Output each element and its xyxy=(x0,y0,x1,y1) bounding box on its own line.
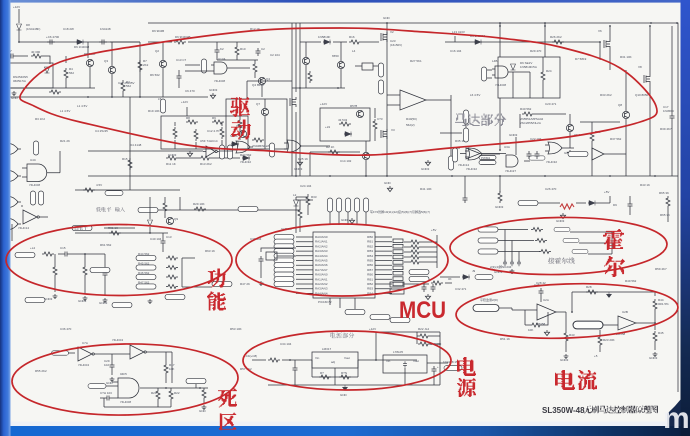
svg-text:GND3: GND3 xyxy=(509,133,518,137)
svg-text:Q9: Q9 xyxy=(174,217,178,221)
svg-text:74HC08: 74HC08 xyxy=(120,400,131,404)
svg-text:10K: 10K xyxy=(528,328,533,332)
svg-text:R3 1K2: R3 1K2 xyxy=(35,117,45,121)
svg-text:R20: R20 xyxy=(151,391,157,395)
svg-text:GND3: GND3 xyxy=(99,301,108,305)
svg-text:74HC32: 74HC32 xyxy=(240,160,251,164)
svg-text:R49 562: R49 562 xyxy=(625,279,637,283)
svg-text:LM317: LM317 xyxy=(322,347,332,351)
svg-text:74HC32: 74HC32 xyxy=(466,167,477,171)
svg-text:GND3: GND3 xyxy=(294,167,303,171)
svg-text:C?3: C?3 xyxy=(377,117,383,121)
svg-text:R19 10K: R19 10K xyxy=(148,109,160,113)
svg-text:RB1: RB1 xyxy=(367,240,373,244)
svg-text:C18 2W: C18 2W xyxy=(63,27,74,31)
svg-text:+5: +5 xyxy=(594,354,598,358)
svg-text:R27 5K1: R27 5K1 xyxy=(410,59,422,63)
svg-text:Q4: Q4 xyxy=(266,77,270,81)
svg-text:RA1/AN1: RA1/AN1 xyxy=(315,240,328,244)
svg-text:C?H 103: C?H 103 xyxy=(100,391,112,395)
svg-text:2K2: 2K2 xyxy=(143,63,149,67)
svg-text:R9: R9 xyxy=(212,116,216,120)
svg-text:L2: L2 xyxy=(293,193,297,197)
svg-text:RA7/AN7: RA7/AN7 xyxy=(315,268,328,272)
svg-text:R16: R16 xyxy=(349,35,355,39)
svg-text:L5: L5 xyxy=(158,97,162,101)
svg-text:R23 562: R23 562 xyxy=(240,153,252,157)
svg-text:RB4: RB4 xyxy=(367,254,373,258)
svg-text:C13: C13 xyxy=(166,235,172,239)
svg-text:V3: V3 xyxy=(391,128,395,132)
svg-text:R?: R? xyxy=(320,371,324,375)
svg-text:RA0/AN0: RA0/AN0 xyxy=(315,273,328,277)
svg-text:C4? 25x35V: C4? 25x35V xyxy=(118,81,135,85)
svg-text:C16 104: C16 104 xyxy=(450,49,462,53)
svg-text:Vout: Vout xyxy=(344,356,350,360)
svg-text:74HC32: 74HC32 xyxy=(546,160,557,164)
svg-text:L4: L4 xyxy=(352,49,356,53)
svg-text:C2 104: C2 104 xyxy=(270,53,280,57)
svg-text:Vout: Vout xyxy=(413,359,419,363)
svg-text:平稳监测2(R): 平稳监测2(R) xyxy=(480,297,498,302)
svg-text:R43: R43 xyxy=(569,333,575,337)
svg-text:102: 102 xyxy=(104,363,109,367)
svg-text:GND: GND xyxy=(383,16,391,20)
svg-text:R22 JL2: R22 JL2 xyxy=(418,327,430,331)
svg-text:C15: C15 xyxy=(60,246,66,250)
svg-text:RB3: RB3 xyxy=(367,249,373,253)
svg-text:MCU: MCU xyxy=(399,297,446,324)
svg-text:D6 9D4B: D6 9D4B xyxy=(152,29,164,33)
svg-text:RA2/AN2: RA2/AN2 xyxy=(315,244,328,248)
svg-text:RA5/AN5: RA5/AN5 xyxy=(315,259,328,263)
svg-text:SL350W-48: SL350W-48 xyxy=(542,406,585,415)
svg-text:+L9: +L9 xyxy=(325,125,330,129)
svg-text:U13A: U13A xyxy=(218,57,226,61)
svg-text:RA3/AN3: RA3/AN3 xyxy=(315,287,328,291)
svg-text:R13 2K2: R13 2K2 xyxy=(200,162,212,166)
svg-text:R39 4K7: R39 4K7 xyxy=(660,127,672,131)
svg-text:C34 104: C34 104 xyxy=(280,342,292,346)
svg-text:R10: R10 xyxy=(240,47,246,51)
svg-text:RB0: RB0 xyxy=(367,273,373,277)
svg-text:RA2/AN2: RA2/AN2 xyxy=(315,282,328,286)
svg-text:GND3: GND3 xyxy=(560,358,569,362)
svg-text:1N4148: 1N4148 xyxy=(100,27,111,31)
svg-text:GND: GND xyxy=(340,393,348,397)
svg-text:RB0: RB0 xyxy=(367,235,373,239)
svg-text:R41 10K: R41 10K xyxy=(420,187,432,191)
svg-text:562(2): 562(2) xyxy=(406,123,415,127)
svg-text:2N04B/NL2A: 2N04B/NL2A xyxy=(252,144,270,148)
svg-text:C32 471: C32 471 xyxy=(455,287,467,291)
svg-text:R37 562: R37 562 xyxy=(610,137,622,141)
svg-text:RA0/AN0: RA0/AN0 xyxy=(315,235,328,239)
svg-text:06050.5A: 06050.5A xyxy=(13,79,26,83)
svg-text:R44 562: R44 562 xyxy=(138,252,150,256)
svg-text:+: + xyxy=(437,365,439,369)
svg-text:R35 1K: R35 1K xyxy=(455,139,465,143)
svg-text:R65 3K: R65 3K xyxy=(660,213,670,217)
svg-text:C12 4.7K: C12 4.7K xyxy=(207,129,220,133)
svg-text:GND: GND xyxy=(106,381,114,385)
svg-text:D7 5819: D7 5819 xyxy=(575,57,587,61)
svg-text:RA1/AN1: RA1/AN1 xyxy=(315,277,328,281)
svg-text:C20 471: C20 471 xyxy=(545,102,557,106)
svg-text:6550: 6550 xyxy=(332,54,339,58)
svg-text:GND3: GND3 xyxy=(556,219,565,223)
svg-text:+C9(+C8): +C9(+C8) xyxy=(244,354,257,358)
svg-text:Q2: Q2 xyxy=(155,49,159,53)
svg-text:R31 1K: R31 1K xyxy=(108,226,118,230)
svg-text:C14 102: C14 102 xyxy=(340,159,352,163)
svg-text:R51 1K: R51 1K xyxy=(500,337,510,341)
svg-text:U2B: U2B xyxy=(622,310,628,314)
svg-text:C36 470: C36 470 xyxy=(60,327,72,331)
svg-text:J9: J9 xyxy=(472,269,476,273)
svg-text:R21 2K: R21 2K xyxy=(60,139,70,143)
svg-text:U4C: U4C xyxy=(30,158,37,162)
svg-text:R26 2K2: R26 2K2 xyxy=(550,35,562,39)
svg-text:R22: R22 xyxy=(174,391,180,395)
svg-text:R45: R45 xyxy=(658,331,664,335)
svg-text:RA4/AN4: RA4/AN4 xyxy=(315,254,328,258)
svg-text:R28: R28 xyxy=(586,285,592,289)
svg-text:V8: V8 xyxy=(638,65,642,69)
svg-text:+12V: +12V xyxy=(181,100,188,104)
svg-text:R2 1K: R2 1K xyxy=(326,145,334,149)
svg-text:Q10 8050: Q10 8050 xyxy=(635,93,649,97)
svg-text:L4B: L4B xyxy=(492,59,497,63)
svg-text:GND3: GND3 xyxy=(78,299,87,303)
svg-text:C4 25x35: C4 25x35 xyxy=(95,129,108,133)
svg-text:D9: D9 xyxy=(613,203,617,207)
svg-text:R40 562: R40 562 xyxy=(520,107,532,111)
svg-text:R40(50): R40(50) xyxy=(406,117,417,121)
svg-text:L1 4.5V: L1 4.5V xyxy=(60,109,70,113)
svg-text:L78L05: L78L05 xyxy=(393,350,403,354)
svg-text:GND: GND xyxy=(199,409,207,413)
svg-text:写F72管脚10(11)(12)接(5)(6)(7)引脚选5: 写F72管脚10(11)(12)接(5)(6)(7)引脚选5(6)(7) xyxy=(370,209,430,214)
svg-text:R15: R15 xyxy=(122,157,128,161)
svg-text:1N5819F/5A: 1N5819F/5A xyxy=(520,65,537,69)
svg-text:R5?8: R5?8 xyxy=(350,104,358,108)
svg-text:adj: adj xyxy=(331,360,335,364)
svg-text:GND3: GND3 xyxy=(649,356,658,360)
svg-text:Vin: Vin xyxy=(386,359,391,363)
svg-text:R33 2K2: R33 2K2 xyxy=(600,93,612,97)
svg-text:R61 562: R61 562 xyxy=(100,243,112,247)
svg-text:R29 470: R29 470 xyxy=(530,49,542,53)
svg-text:RB1: RB1 xyxy=(367,277,373,281)
svg-text:+L4: +L4 xyxy=(30,246,35,250)
svg-text:RB2: RB2 xyxy=(367,244,373,248)
svg-text:+12V: +12V xyxy=(369,327,376,331)
svg-text:RA3/AN3: RA3/AN3 xyxy=(315,249,328,253)
svg-text:0K: 0K xyxy=(448,277,452,281)
svg-text:R59 4K7: R59 4K7 xyxy=(655,267,667,271)
svg-text:R47 2K: R47 2K xyxy=(240,282,250,286)
svg-text:C2: C2 xyxy=(261,47,265,51)
svg-text:74HC08: 74HC08 xyxy=(29,183,40,187)
svg-text:U5F 74HC14: U5F 74HC14 xyxy=(200,139,218,143)
svg-text:R29 10K: R29 10K xyxy=(193,202,205,206)
svg-text:C40 104: C40 104 xyxy=(150,237,162,241)
svg-text:R?N: R?N xyxy=(341,371,347,375)
svg-text:R24: R24 xyxy=(546,69,552,73)
svg-text:GND3: GND3 xyxy=(495,205,504,209)
svg-text:R53 10K: R53 10K xyxy=(230,327,242,331)
svg-text:GND3: GND3 xyxy=(421,167,430,171)
svg-text:GND: GND xyxy=(384,181,392,185)
svg-text:R11 1K: R11 1K xyxy=(166,162,176,166)
svg-text:R45 562: R45 562 xyxy=(138,261,150,265)
svg-text:1N5819F: 1N5819F xyxy=(318,35,331,39)
svg-text:74HC04: 74HC04 xyxy=(78,363,89,367)
svg-text:+C6 4700: +C6 4700 xyxy=(46,35,59,39)
svg-text:RA6/AN6: RA6/AN6 xyxy=(315,263,328,267)
svg-text:74HC14: 74HC14 xyxy=(18,226,29,230)
svg-text:R33: R33 xyxy=(311,195,317,199)
svg-text:4.5V: 4.5V xyxy=(96,183,102,187)
svg-text:Q7: Q7 xyxy=(256,102,260,106)
svg-text:40 390: 40 390 xyxy=(31,50,41,54)
svg-text:m: m xyxy=(663,402,690,435)
svg-text:PWM4: PWM4 xyxy=(481,156,490,160)
svg-text:K2: K2 xyxy=(220,47,224,51)
svg-text:GND3: GND3 xyxy=(209,88,218,92)
svg-text:2SC2655/NL2A: 2SC2655/NL2A xyxy=(520,121,541,125)
svg-text:R65 3K: R65 3K xyxy=(659,191,669,195)
svg-text:C7A: C7A xyxy=(82,341,88,345)
svg-text:R47 562: R47 562 xyxy=(138,280,150,284)
svg-text:+12V: +12V xyxy=(320,102,327,106)
svg-text:74HC08: 74HC08 xyxy=(214,79,225,83)
svg-text:RB5: RB5 xyxy=(367,259,373,263)
svg-text:Q3: Q3 xyxy=(104,59,108,63)
svg-text:1N45KV: 1N45KV xyxy=(663,109,674,113)
svg-text:U2A: U2A xyxy=(543,298,549,302)
svg-text:RB7: RB7 xyxy=(367,268,373,272)
svg-text:+5V: +5V xyxy=(431,228,436,232)
svg-text:+5V: +5V xyxy=(604,190,609,194)
svg-text:R63 1K: R63 1K xyxy=(205,249,215,253)
svg-text:R8: R8 xyxy=(186,116,190,120)
svg-text:(1N4148F): (1N4148F) xyxy=(26,27,40,31)
svg-text:R46 562: R46 562 xyxy=(138,271,150,275)
svg-text:C24 104: C24 104 xyxy=(300,184,312,188)
svg-text:R55 2K2: R55 2K2 xyxy=(35,369,47,373)
svg-text:L1 4.5V: L1 4.5V xyxy=(77,104,87,108)
svg-text:C6 470: C6 470 xyxy=(185,89,195,93)
svg-text:R23 20K: R23 20K xyxy=(603,338,615,342)
svg-text:C26 470: C26 470 xyxy=(545,187,557,191)
svg-text:RB3: RB3 xyxy=(367,287,373,291)
svg-text:10K: 10K xyxy=(169,367,174,371)
svg-text:2(3)(4)脚NC234: 2(3)(4)脚NC234 xyxy=(490,264,512,269)
svg-text:C13 C7: C13 C7 xyxy=(176,58,187,62)
svg-text:GND: GND xyxy=(341,218,349,222)
svg-text:562: 562 xyxy=(69,71,74,75)
svg-text:74HC08: 74HC08 xyxy=(495,83,506,87)
svg-text:V6: V6 xyxy=(598,29,602,33)
svg-text:D4 4148: D4 4148 xyxy=(130,143,142,147)
svg-text:74HC04: 74HC04 xyxy=(112,338,123,342)
svg-text:U3A: U3A xyxy=(504,145,510,149)
svg-text:04F5: 04F5 xyxy=(120,372,127,376)
svg-text:RB2: RB2 xyxy=(367,282,373,286)
svg-text:(16x50V): (16x50V) xyxy=(390,43,402,47)
svg-text:RB6: RB6 xyxy=(367,263,373,267)
svg-text:Vin: Vin xyxy=(315,356,320,360)
svg-text:0R1.5%: 0R1.5% xyxy=(658,302,669,306)
svg-text:R6 562: R6 562 xyxy=(150,73,160,77)
svg-text:+12V: +12V xyxy=(13,5,20,9)
svg-text:74HC27: 74HC27 xyxy=(505,169,516,173)
svg-text:L6 4.5V: L6 4.5V xyxy=(470,93,480,97)
svg-text:Q8: Q8 xyxy=(618,103,622,107)
svg-text:R31 10K: R31 10K xyxy=(620,55,632,59)
svg-text:Q4 8550: Q4 8550 xyxy=(252,83,264,87)
svg-text:GND: GND xyxy=(11,96,19,100)
svg-text:R25 1K: R25 1K xyxy=(298,157,308,161)
svg-text:43 543: 43 543 xyxy=(338,118,348,122)
svg-text:D6 1N4048: D6 1N4048 xyxy=(74,45,90,49)
svg-text:R43 1K: R43 1K xyxy=(640,183,650,187)
